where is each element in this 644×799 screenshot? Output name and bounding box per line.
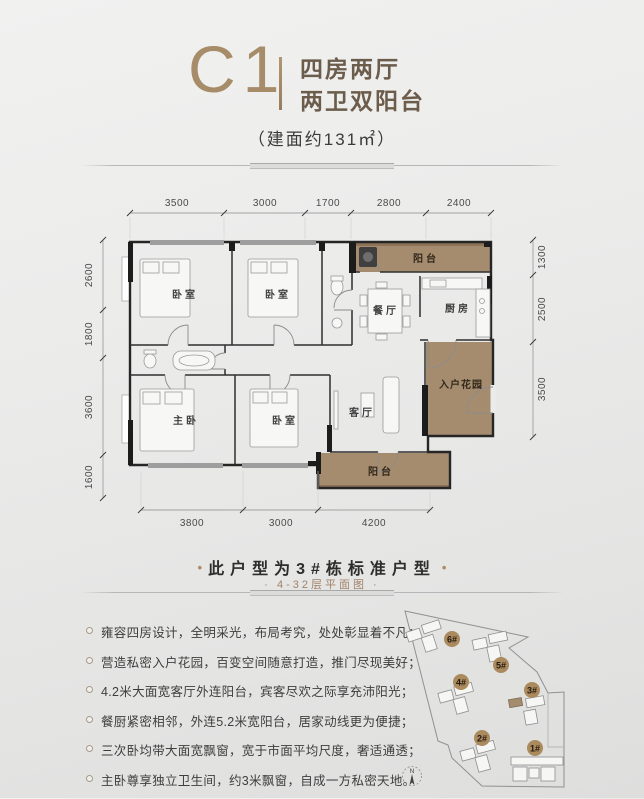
- bullet-ring-icon: [86, 657, 93, 664]
- svg-text:3500: 3500: [165, 198, 189, 209]
- svg-text:3500: 3500: [537, 377, 548, 401]
- decor-dot-left: •: [192, 560, 209, 575]
- feature-item: 三次卧均带大面宽飘窗，宽于市面平均尺度，奢适通透；: [86, 740, 416, 759]
- feature-text: 餐厨紧密相邻，外连5.2米宽阳台，居家动线更为便捷；: [101, 711, 414, 730]
- floor-plan: 卧室 卧室 阳台 餐厅 厨房 主卧 卧室 客厅 入户花园 阳台 3500 300…: [78, 195, 578, 540]
- svg-text:2#: 2#: [477, 734, 487, 744]
- room-label-bedroom-tm: 卧室: [265, 288, 291, 301]
- highlighted-unit-c1: [508, 698, 522, 708]
- room-label-bedroom-bm: 卧室: [272, 414, 298, 427]
- svg-text:3000: 3000: [269, 518, 293, 529]
- feature-text: 三次卧均带大面宽飘窗，宽于市面平均尺度，奢适通透；: [101, 740, 421, 759]
- feature-item: 雍容四房设计，全明采光，布局考究，处处彰显着不凡；: [86, 622, 416, 641]
- svg-text:1300: 1300: [537, 245, 548, 269]
- building-1: [511, 757, 563, 781]
- svg-text:2800: 2800: [377, 198, 401, 209]
- svg-text:3600: 3600: [84, 395, 95, 419]
- bullet-ring-icon: [86, 775, 93, 782]
- subtitle-line1: 四房两厅: [300, 53, 425, 85]
- svg-text:1600: 1600: [84, 465, 95, 489]
- svg-text:1700: 1700: [316, 198, 340, 209]
- room-label-balcony-bottom: 阳台: [368, 465, 394, 478]
- room-label-kitchen: 厨房: [445, 302, 471, 315]
- feature-text: 营造私密入户花园，百变空间随意打造，推门尽现美好；: [101, 652, 421, 671]
- building-3: [508, 694, 547, 728]
- feature-item: 营造私密入户花园，百变空间随意打造，推门尽现美好；: [86, 652, 416, 671]
- compass-icon: N: [403, 767, 422, 786]
- svg-text:1#: 1#: [530, 744, 540, 754]
- unit-code: C1: [188, 36, 286, 102]
- site-inner-line: [548, 693, 564, 747]
- svg-text:5#: 5#: [496, 661, 506, 671]
- svg-text:4#: 4#: [456, 678, 466, 688]
- feature-list: 雍容四房设计，全明采光，布局考究，处处彰显着不凡； 营造私密入户花园，百变空间随…: [86, 622, 416, 799]
- svg-text:2500: 2500: [537, 297, 548, 321]
- feature-text: 主卧尊享独立卫生间，约3米飘窗，自成一方私密天地。: [101, 770, 415, 789]
- entry-door-gap: [491, 385, 496, 413]
- feature-item: 4.2米大面宽客厅外连阳台，宾客尽欢之际享充沛阳光；: [86, 681, 416, 700]
- subtitle-line2: 两卫双阳台: [300, 85, 425, 117]
- feature-item: 餐厨紧密相邻，外连5.2米宽阳台，居家动线更为便捷；: [86, 711, 416, 730]
- room-label-master: 主卧: [173, 414, 199, 427]
- feature-text: 4.2米大面宽客厅外连阳台，宾客尽欢之际享充沛阳光；: [101, 681, 414, 700]
- decor-dot-right: •: [436, 560, 453, 575]
- divider-center-band: [250, 163, 394, 169]
- divider-center-band: [250, 590, 394, 596]
- svg-text:2600: 2600: [84, 263, 95, 287]
- area-note: （建面约131㎡）: [0, 125, 644, 150]
- header-divider: [80, 163, 564, 169]
- building-6: [405, 620, 447, 656]
- room-label-dining: 餐厅: [372, 304, 399, 317]
- svg-text:1800: 1800: [84, 322, 95, 346]
- bullet-ring-icon: [86, 686, 93, 693]
- room-label-living: 客厅: [348, 406, 375, 419]
- bullet-ring-icon: [86, 745, 93, 752]
- unit-subtitle: 四房两厅 两卫双阳台: [300, 53, 425, 117]
- svg-text:4200: 4200: [362, 518, 386, 529]
- room-label-balcony-top: 阳台: [413, 252, 439, 265]
- svg-text:2400: 2400: [447, 198, 471, 209]
- svg-text:3000: 3000: [253, 198, 277, 209]
- room-label-bedroom-tl: 卧室: [172, 288, 198, 301]
- feature-item: 主卧尊享独立卫生间，约3米飘窗，自成一方私密天地。: [86, 770, 416, 789]
- svg-text:6#: 6#: [447, 635, 457, 645]
- svg-text:3#: 3#: [527, 686, 537, 696]
- room-label-entry-garden: 入户花园: [439, 378, 483, 391]
- site-map: 6# 5# 4# 3# 2# 1# N: [385, 595, 585, 798]
- svg-text:3800: 3800: [180, 518, 204, 529]
- bullet-ring-icon: [86, 716, 93, 723]
- title-divider-bar: [279, 57, 282, 110]
- feature-text: 雍容四房设计，全明采光，布局考究，处处彰显着不凡；: [101, 622, 421, 641]
- svg-text:N: N: [410, 768, 415, 775]
- bullet-ring-icon: [86, 627, 93, 634]
